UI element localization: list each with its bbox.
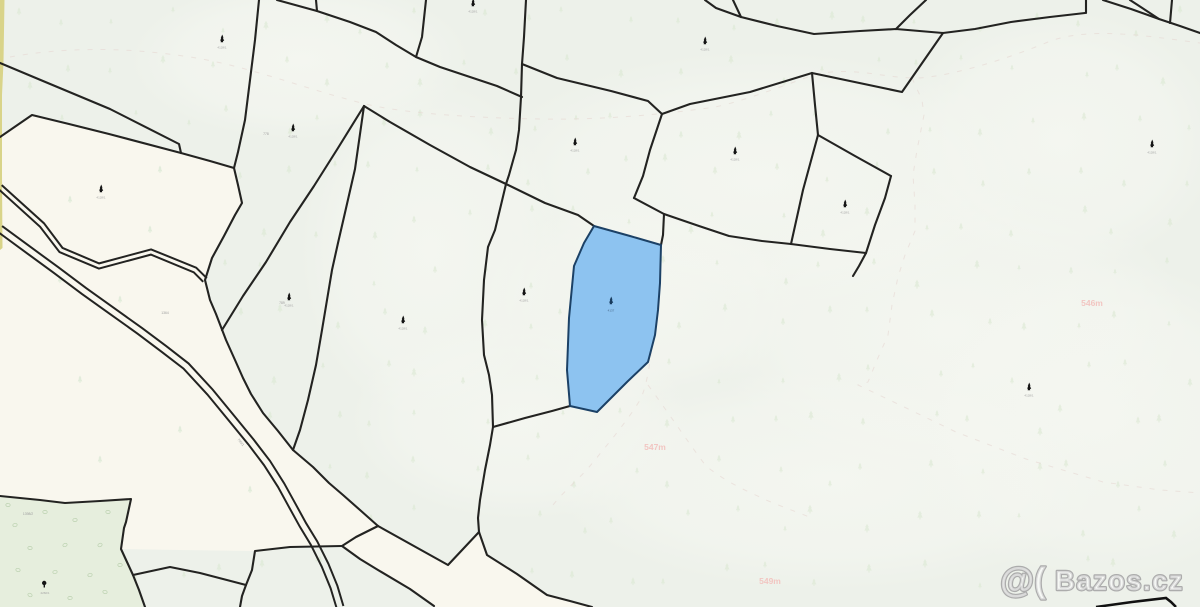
svg-text:4128/1: 4128/1 <box>570 149 580 153</box>
svg-text:4128/1: 4128/1 <box>519 299 529 303</box>
svg-text:1364: 1364 <box>161 311 169 315</box>
svg-text:778: 778 <box>263 132 269 136</box>
svg-text:4128/1: 4128/1 <box>468 10 478 14</box>
svg-text:4128/1: 4128/1 <box>730 158 740 162</box>
svg-text:Bazos.cz: Bazos.cz <box>1055 565 1184 596</box>
svg-text:1398/2: 1398/2 <box>23 512 33 516</box>
svg-text:549m: 549m <box>759 576 781 586</box>
svg-text:547m: 547m <box>644 442 666 452</box>
svg-text:4128/1: 4128/1 <box>398 327 408 331</box>
svg-text:4128/1: 4128/1 <box>1147 151 1157 155</box>
svg-text:4128/1: 4128/1 <box>1024 394 1034 398</box>
svg-text:@(: @( <box>1000 561 1046 600</box>
svg-text:789: 789 <box>279 301 285 305</box>
svg-text:4128/1: 4128/1 <box>217 46 227 50</box>
svg-text:4137: 4137 <box>608 309 615 313</box>
svg-text:4128/1: 4128/1 <box>96 196 106 200</box>
svg-text:4128/1: 4128/1 <box>288 135 298 139</box>
svg-text:4128/1: 4128/1 <box>840 211 850 215</box>
svg-text:546m: 546m <box>1081 298 1103 308</box>
svg-text:4128/1: 4128/1 <box>700 48 710 52</box>
svg-text:4128/1: 4128/1 <box>284 304 294 308</box>
svg-text:4260/1: 4260/1 <box>40 591 50 595</box>
